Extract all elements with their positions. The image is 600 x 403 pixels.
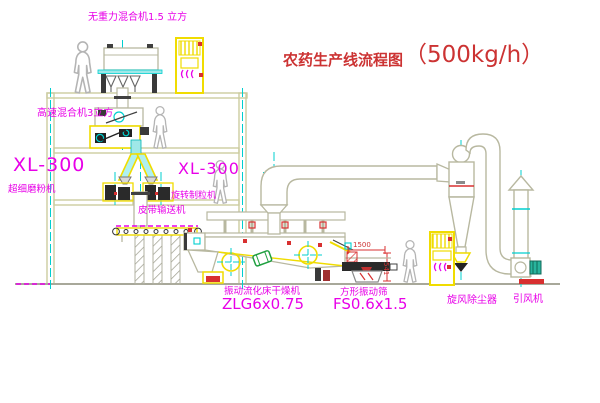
label-belt-conveyor: 皮带输送机 [138,206,186,216]
discharge-valve [454,263,468,272]
label-granulator-model: XL-300 [178,161,240,177]
label-screen-model: FS0.6x1.5 [333,297,407,312]
label-gravity-mixer: 无重力混合机1.5 立方 [88,13,187,23]
induced-draft-fan [511,258,544,284]
label-mill-model: XL-300 [13,156,85,175]
fluid-bed-dryer [184,212,345,283]
fan-base [519,279,544,284]
label-granulator-name: 旋转制粒机 [171,192,216,201]
control-cabinet-ground [430,232,454,285]
diagram-capacity: （500kg/h） [404,44,544,67]
roof-slab [47,93,247,98]
dim-screen-height: 541 [382,262,389,275]
control-cabinet-roof [176,38,203,93]
v-chute [119,154,157,180]
person-roof [74,42,91,93]
person-floor2 [153,107,167,149]
label-mill-name: 超细磨粉机 [8,185,56,195]
cyclone-to-fan-duct [466,134,519,274]
person-ground [403,241,417,283]
label-high-speed-mixer: 高速混合机3立方 [37,109,113,119]
mixer-cyan-shaft [98,70,162,74]
mixer2-discharge [131,140,141,154]
label-cyclone: 旋风除尘器 [447,296,497,306]
diagram-title: 农药生产线流程图 [283,53,403,68]
dryer-exhaust-duct [261,166,437,234]
dim-screen-length: 1500 [353,242,371,249]
label-dryer-model: ZLG6x0.75 [222,297,304,312]
floor2-slab [54,148,239,153]
support-pillars [135,233,180,284]
cad-drawing-canvas: 农药生产线流程图 （500kg/h） 无重力混合机1.5 立方 高速混合机3立方… [0,0,600,403]
label-fan: 引风机 [513,295,543,305]
cyclone-dim-text-mark [456,181,465,184]
fan-motor [530,261,541,274]
